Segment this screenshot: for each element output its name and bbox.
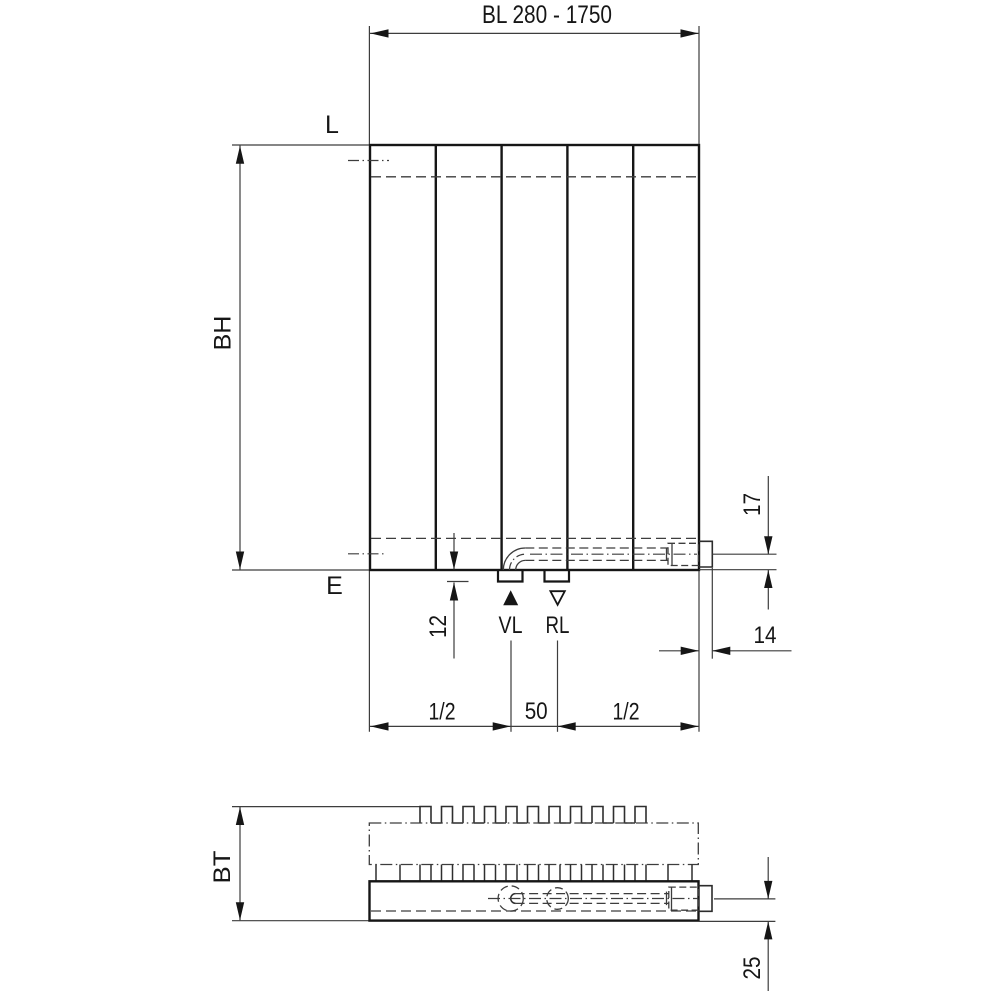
svg-text:E: E [326, 572, 343, 600]
svg-text:VL: VL [499, 612, 523, 639]
svg-text:50: 50 [525, 698, 548, 725]
svg-text:BL 280 - 1750: BL 280 - 1750 [482, 1, 612, 29]
svg-text:BH: BH [210, 316, 237, 351]
svg-text:12: 12 [425, 615, 452, 638]
svg-text:25: 25 [739, 957, 766, 980]
svg-text:17: 17 [739, 493, 766, 516]
svg-text:RL: RL [546, 612, 570, 639]
svg-text:BT: BT [209, 850, 236, 883]
svg-text:1/2: 1/2 [613, 699, 640, 726]
svg-text:14: 14 [754, 622, 777, 649]
svg-text:1/2: 1/2 [429, 699, 456, 726]
svg-text:L: L [325, 111, 339, 139]
